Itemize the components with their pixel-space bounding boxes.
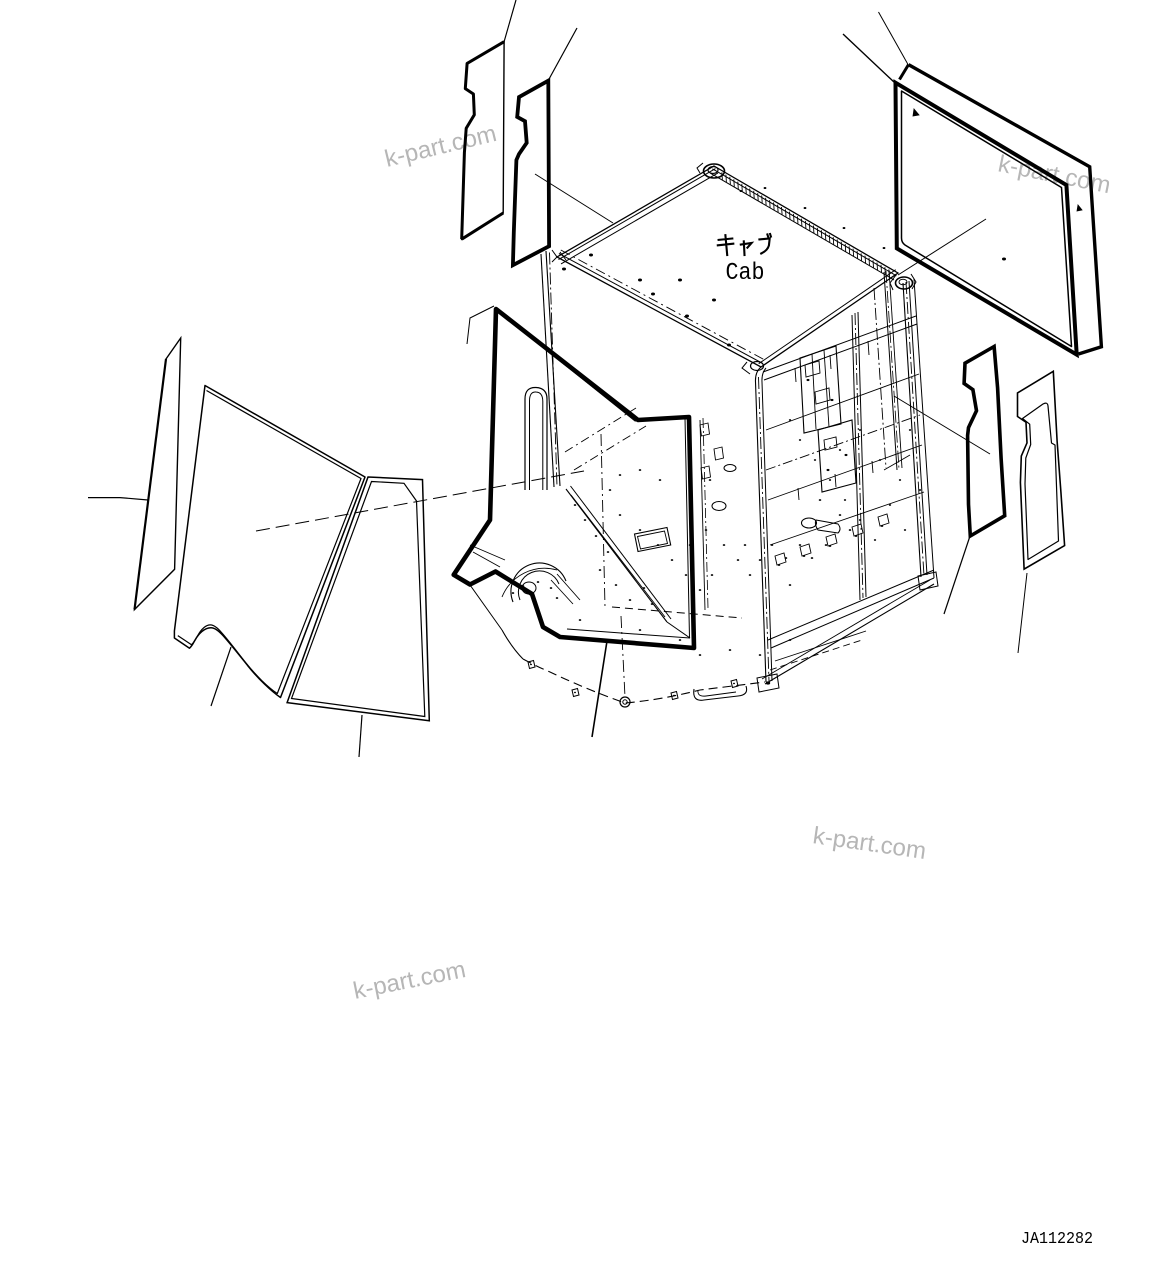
svg-text:Cab: Cab <box>726 260 765 287</box>
svg-text:JA112282: JA112282 <box>1021 1230 1093 1249</box>
